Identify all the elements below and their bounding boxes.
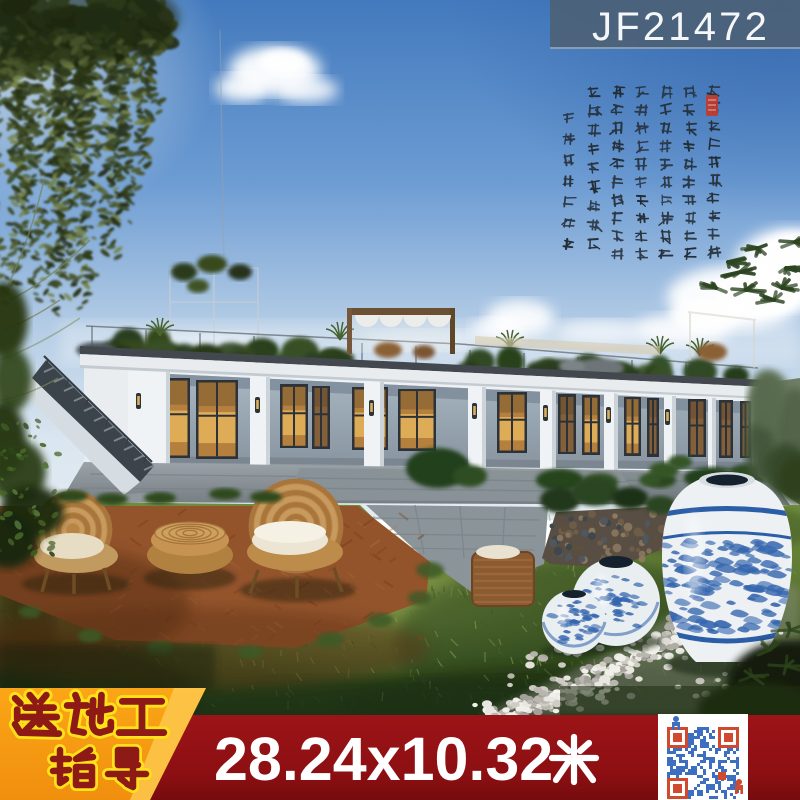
- svg-text:28.24x10.32: 28.24x10.32: [214, 725, 553, 793]
- svg-text:JF21472: JF21472: [592, 5, 770, 49]
